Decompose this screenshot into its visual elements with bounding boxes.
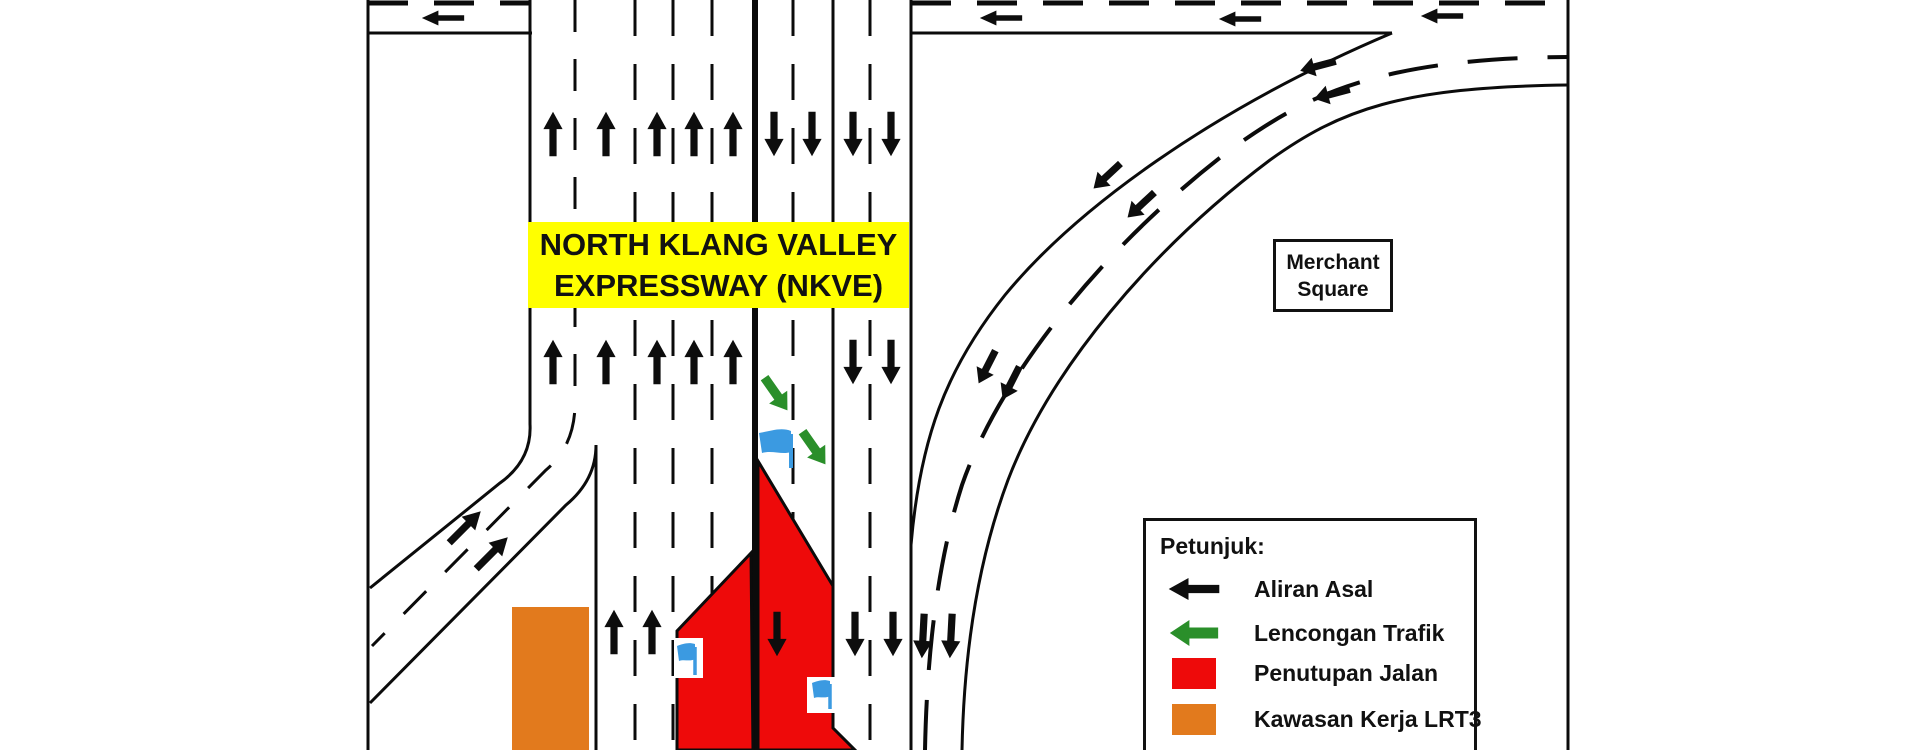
curve-flow-arrow-icon [1312, 80, 1353, 108]
up-arrow-icon [723, 112, 742, 157]
down-arrow-icon [881, 112, 900, 157]
left-arrow-icon [980, 11, 1022, 26]
merge-ramp-centerline [372, 0, 575, 646]
curve-flow-arrow-icon [1087, 156, 1127, 195]
expressway-left-edge [370, 0, 530, 588]
legend-title: Petunjuk: [1160, 533, 1265, 560]
up-arrow-icon [543, 112, 562, 157]
expressway-name-banner: NORTH KLANG VALLEY EXPRESSWAY (NKVE) [528, 222, 909, 308]
down-arrow-icon [802, 112, 821, 157]
curve-flow-arrow-icon [1298, 52, 1339, 80]
road-closure-right [758, 461, 855, 750]
down-arrow-icon [764, 112, 783, 157]
landmark-line2: Square [1276, 276, 1390, 303]
up-arrow-icon [684, 340, 703, 385]
legend: Petunjuk: Aliran Asal Lencongan Trafik P… [1143, 518, 1477, 750]
up-arrow-icon [604, 610, 623, 655]
traffic-diversion-diagram: NORTH KLANG VALLEY EXPRESSWAY (NKVE) Mer… [0, 0, 1920, 750]
red-swatch-icon [1166, 658, 1230, 689]
flag-icon [674, 638, 703, 678]
up-arrow-icon [596, 340, 615, 385]
work-zones [512, 461, 855, 750]
curve-flow-arrow-icon [1121, 185, 1161, 224]
landmark-box: Merchant Square [1273, 239, 1393, 312]
up-arrow-icon [647, 340, 666, 385]
down-arrow-icon [843, 112, 862, 157]
road-schematic [0, 0, 1920, 750]
up-right-arrow-icon [469, 530, 514, 575]
left-arrow-icon [1219, 12, 1261, 27]
legend-label: Kawasan Kerja LRT3 [1254, 706, 1482, 733]
left-arrow-icon [1421, 9, 1463, 24]
landmark-line1: Merchant [1276, 249, 1390, 276]
diversion-arrow-icon [756, 371, 797, 416]
banner-line2: EXPRESSWAY (NKVE) [528, 265, 909, 306]
diversion-arrow-icon [794, 425, 835, 470]
down-arrow-icon [845, 612, 864, 657]
black-left-arrow-icon [1166, 576, 1230, 602]
down-arrow-icon [883, 612, 902, 657]
legend-row-diversion: Lencongan Trafik [1166, 616, 1444, 650]
up-arrow-icon [723, 340, 742, 385]
lrt3-work-area [512, 607, 589, 750]
up-arrow-icon [684, 112, 703, 157]
legend-label: Penutupan Jalan [1254, 660, 1438, 687]
down-arrow-icon [843, 340, 862, 385]
banner-line1: NORTH KLANG VALLEY [528, 224, 909, 265]
up-arrow-icon [647, 112, 666, 157]
legend-row-closure: Penutupan Jalan [1166, 656, 1438, 690]
up-arrow-icon [596, 112, 615, 157]
orange-swatch-icon [1166, 704, 1230, 735]
legend-row-original-flow: Aliran Asal [1166, 572, 1373, 606]
legend-label: Lencongan Trafik [1254, 620, 1444, 647]
curve-flow-arrow-icon [970, 346, 1004, 388]
up-arrow-icon [642, 610, 661, 655]
down-arrow-icon [881, 340, 900, 385]
down-arrow-icon [940, 613, 962, 659]
up-arrow-icon [543, 340, 562, 385]
flag-icon [807, 677, 837, 713]
legend-label: Aliran Asal [1254, 576, 1373, 603]
left-arrow-icon [422, 11, 464, 26]
legend-row-work-area: Kawasan Kerja LRT3 [1166, 702, 1482, 736]
flag-icon [759, 429, 791, 468]
green-left-arrow-icon [1166, 620, 1230, 646]
